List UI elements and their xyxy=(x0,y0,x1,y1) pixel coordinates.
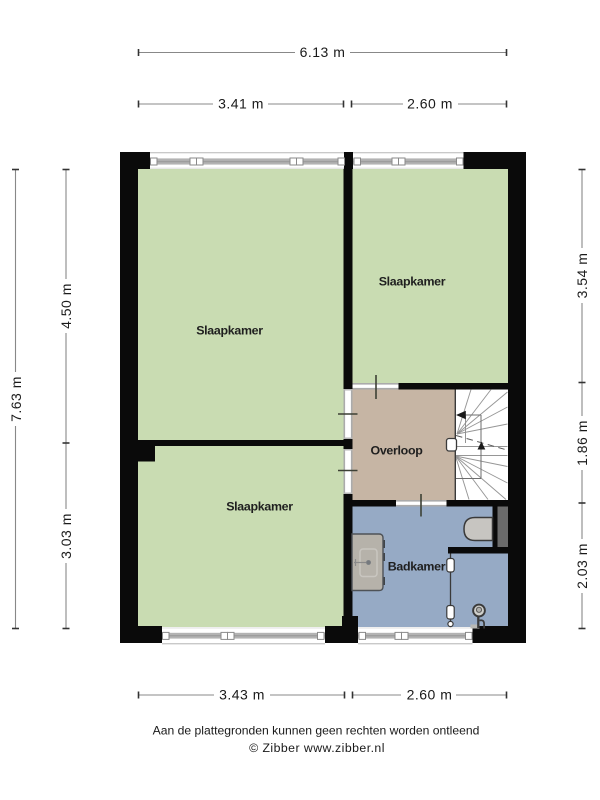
svg-text:© Zibber www.zibber.nl: © Zibber www.zibber.nl xyxy=(249,741,385,755)
svg-text:Badkamer: Badkamer xyxy=(388,560,446,574)
svg-text:Slaapkamer: Slaapkamer xyxy=(196,324,263,338)
svg-text:Aan de plattegronden kunnen ge: Aan de plattegronden kunnen geen rechten… xyxy=(153,724,480,738)
svg-text:2.60 m: 2.60 m xyxy=(407,96,453,112)
svg-text:Slaapkamer: Slaapkamer xyxy=(226,500,293,514)
svg-text:6.13 m: 6.13 m xyxy=(300,44,346,60)
svg-text:2.60 m: 2.60 m xyxy=(407,687,453,703)
svg-text:2.03 m: 2.03 m xyxy=(574,543,590,589)
svg-text:1.86 m: 1.86 m xyxy=(574,420,590,466)
svg-text:3.41 m: 3.41 m xyxy=(218,96,264,112)
svg-text:Overloop: Overloop xyxy=(371,444,424,458)
svg-text:3.43 m: 3.43 m xyxy=(219,687,265,703)
svg-text:3.03 m: 3.03 m xyxy=(58,513,74,559)
svg-text:3.54 m: 3.54 m xyxy=(574,253,590,299)
svg-text:Slaapkamer: Slaapkamer xyxy=(379,275,446,289)
svg-text:4.50 m: 4.50 m xyxy=(58,283,74,329)
svg-text:7.63 m: 7.63 m xyxy=(8,376,24,422)
